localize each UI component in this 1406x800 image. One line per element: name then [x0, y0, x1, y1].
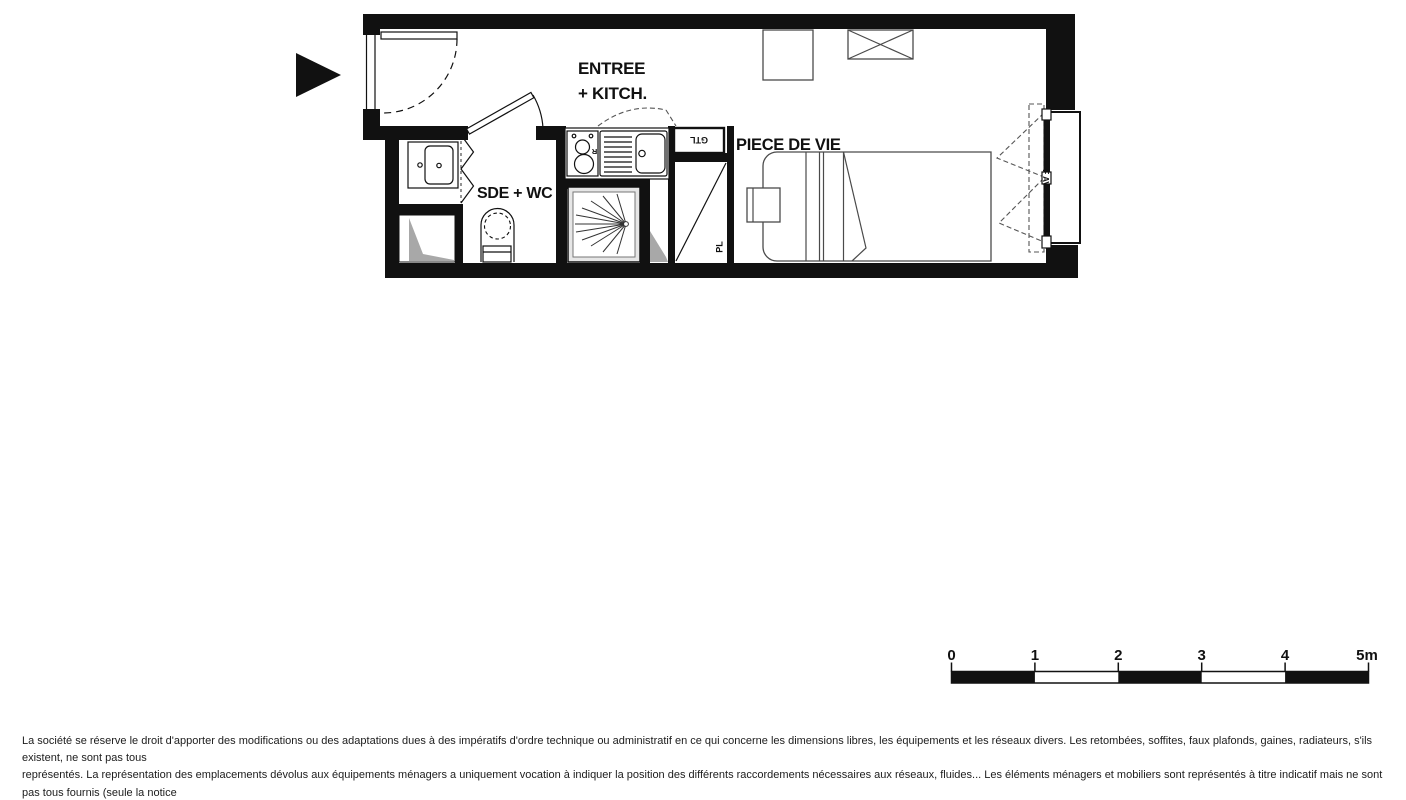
- svg-text:PL: PL: [715, 241, 725, 253]
- floor-plan-page: R GTL PL: [0, 0, 1406, 800]
- svg-text:GTL: GTL: [690, 135, 708, 145]
- kitchenette: R: [565, 108, 676, 179]
- fridge-label: R: [591, 147, 597, 156]
- table: [763, 30, 813, 80]
- folding-door: [461, 135, 474, 203]
- shower: [568, 187, 640, 262]
- scale-bar: 0 1 2 3 4 5m: [947, 647, 1378, 683]
- room-label-sde-wc: SDE + WC: [477, 185, 553, 202]
- scale-tick-1: 1: [1031, 647, 1039, 664]
- room-label-piece-de-vie: PIECE DE VIE: [736, 136, 841, 154]
- scale-tick-3: 3: [1198, 647, 1206, 664]
- disclaimer: La société se réserve le droit d'apporte…: [22, 733, 1390, 800]
- floor-plan-drawing: R GTL PL: [0, 0, 1406, 800]
- bathroom-door: [467, 92, 543, 134]
- closet-pl: PL: [676, 163, 726, 261]
- nightstand: [747, 188, 780, 222]
- scale-tick-4: 4: [1281, 647, 1290, 664]
- duct-shaft: [399, 215, 455, 262]
- gtl-duct: GTL: [674, 128, 724, 153]
- washbasin: [408, 142, 458, 188]
- scale-tick-5m: 5m: [1356, 647, 1378, 664]
- soffit-shade: [650, 231, 668, 262]
- bed: [763, 152, 991, 261]
- wardrobe-crossed: [848, 30, 913, 59]
- entrance-arrow-icon: [296, 53, 341, 97]
- disclaimer-line-2: représentés. La représentation des empla…: [22, 767, 1390, 800]
- scale-tick-0: 0: [947, 647, 955, 664]
- room-label-entree-line1: ENTREE: [578, 59, 645, 78]
- room-label-entree-line2: + KITCH.: [578, 84, 647, 103]
- entrance-door: [367, 32, 458, 113]
- disclaimer-line-1: La société se réserve le droit d'apporte…: [22, 733, 1390, 767]
- toilet: [481, 209, 514, 263]
- scale-tick-2: 2: [1114, 647, 1122, 664]
- window-label: F AV: [1041, 169, 1050, 187]
- window-f-av: F AV: [997, 104, 1080, 252]
- kitchen-sink: [600, 131, 667, 176]
